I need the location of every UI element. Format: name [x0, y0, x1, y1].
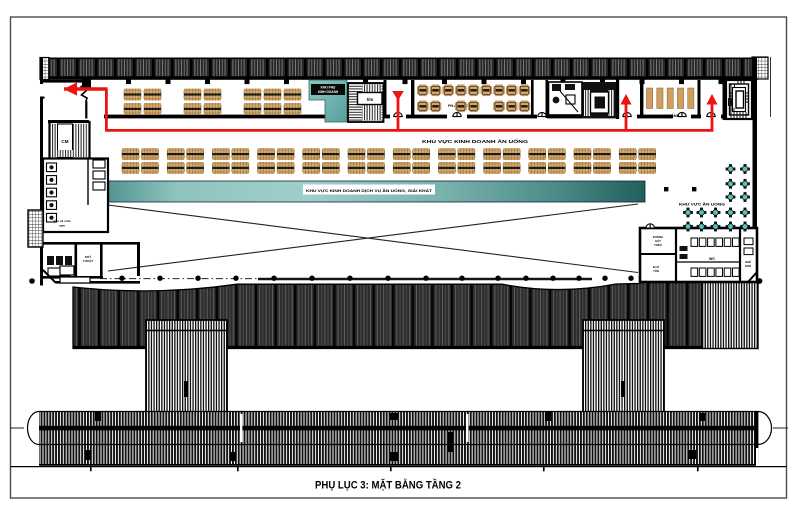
svg-text:L.KHÁNH: L.KHÁNH — [663, 113, 680, 118]
svg-text:KHO PHỤ: KHO PHỤ — [321, 86, 336, 90]
svg-text:t/m: t/m — [367, 97, 374, 102]
svg-text:nam: nam — [59, 223, 66, 227]
svg-text:KHU VỰC KINH DOANH DỊCH VỤ ĂN: KHU VỰC KINH DOANH DỊCH VỤ ĂN UỐNG, GIẢI… — [306, 188, 433, 193]
svg-text:THEO: THEO — [654, 243, 663, 247]
svg-text:THUẬT: THUẬT — [83, 258, 93, 263]
svg-text:KINH DOANH: KINH DOANH — [318, 90, 339, 94]
svg-text:khu vệ sinh: khu vệ sinh — [53, 219, 70, 223]
svg-text:PHỤ LỤC 3: MẶT BẰNG TẦNG 2: PHỤ LỤC 3: MẶT BẰNG TẦNG 2 — [315, 479, 461, 492]
svg-text:KHỔ: KHỔ — [745, 263, 752, 268]
svg-text:KHU VỰC ĂN UỐNG: KHU VỰC ĂN UỐNG — [679, 202, 725, 207]
svg-text:CM: CM — [61, 139, 68, 144]
svg-text:WC: WC — [709, 257, 715, 261]
svg-text:KHU VỰC KINH DOANH ĂN UỐNG: KHU VỰC KINH DOANH ĂN UỐNG — [422, 139, 529, 144]
svg-text:TÂN: TÂN — [653, 268, 659, 273]
